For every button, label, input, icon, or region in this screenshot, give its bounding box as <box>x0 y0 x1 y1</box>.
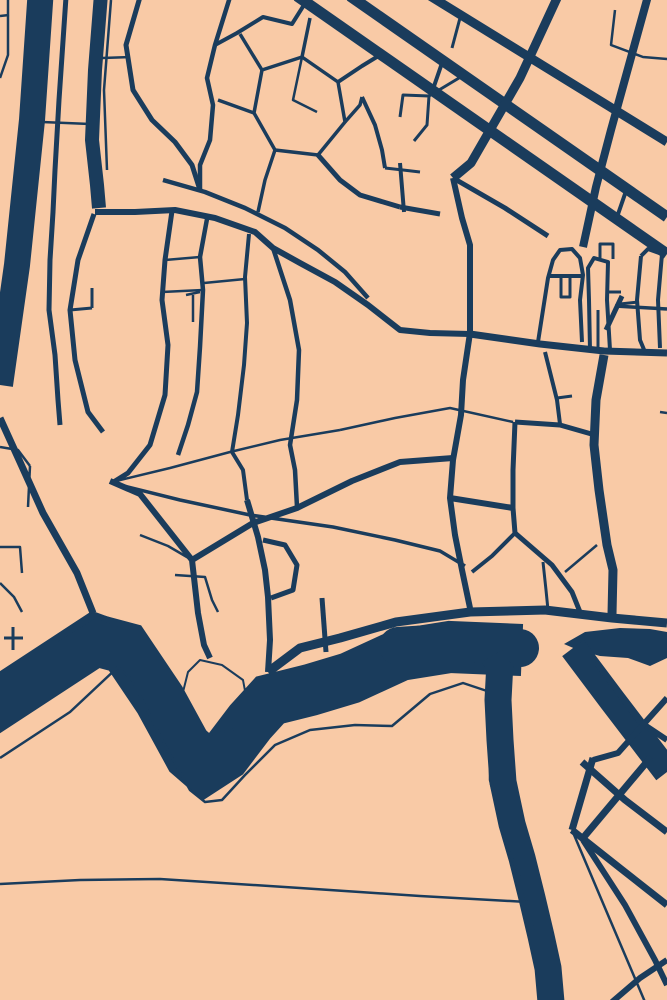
west-band-c <box>92 0 101 208</box>
river-harbor-basin <box>398 642 520 648</box>
vert-mid <box>513 422 515 533</box>
bottle-tail-stub <box>557 396 572 398</box>
tl-lane-2 <box>0 15 9 16</box>
edge-tick <box>660 412 667 413</box>
east-col-stub <box>620 302 638 304</box>
city-map-svg <box>0 0 667 1000</box>
map-poster <box>0 0 667 1000</box>
s2-stub-a <box>70 308 92 310</box>
